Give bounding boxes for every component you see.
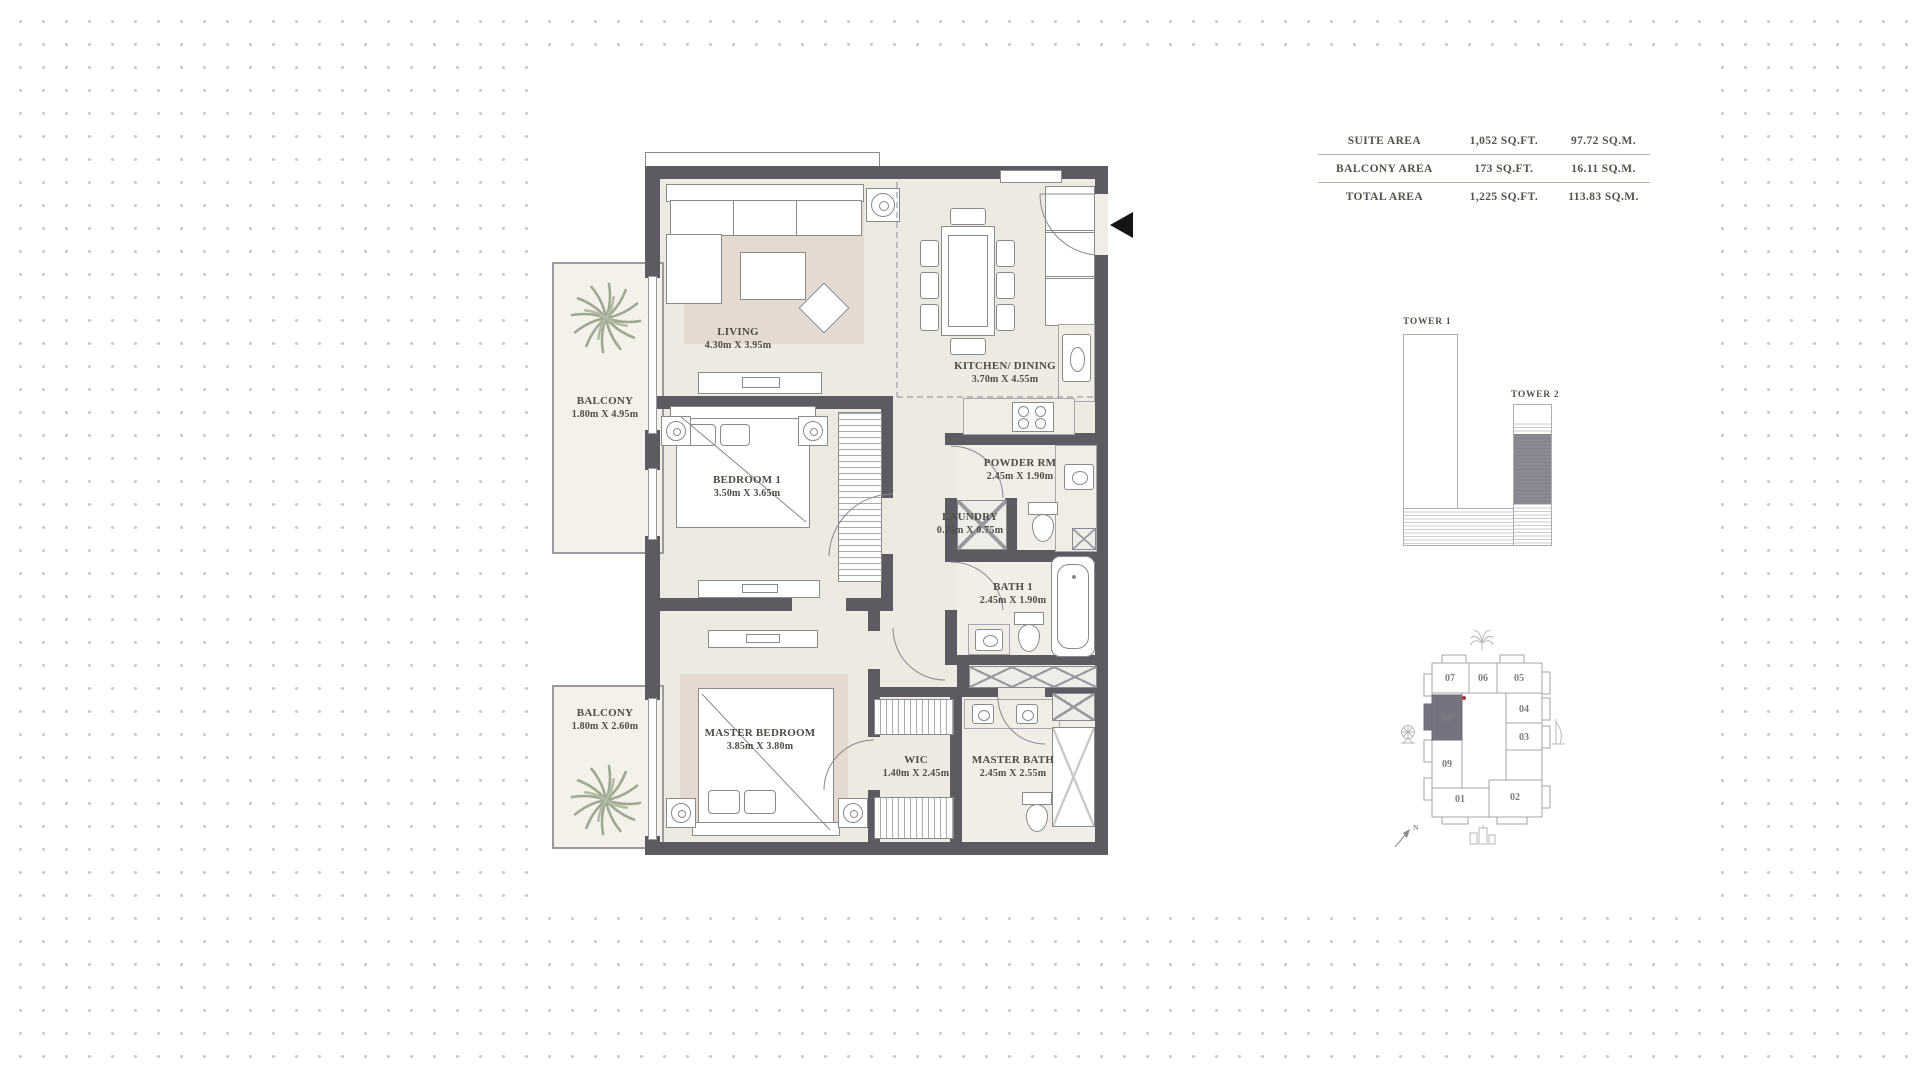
room-label-kitchen-dining: KITCHEN/ DINING3.70m X 4.55m <box>915 360 1095 386</box>
unit-number: 09 <box>1442 759 1452 770</box>
room-label-balcony-2: BALCONY1.80m X 2.60m <box>549 707 661 733</box>
tower-1-label: TOWER 1 <box>1403 317 1451 327</box>
unit-number: 03 <box>1519 732 1529 743</box>
skyline-icon <box>1470 825 1495 844</box>
room-label-balcony-1: BALCONY1.80m X 4.95m <box>549 395 661 421</box>
tower-2-highlighted-floors <box>1514 434 1551 504</box>
area-sqft: 1,052 SQ.FT. <box>1451 135 1557 147</box>
tower-2-outline <box>1513 404 1552 546</box>
room-label-bedroom-1: BEDROOM 13.50m X 3.65m <box>657 474 837 500</box>
area-label: TOTAL AREA <box>1318 191 1451 203</box>
burj-al-arab-icon <box>1552 719 1565 744</box>
unit-number: 02 <box>1510 792 1520 803</box>
unit-number: 05 <box>1514 673 1524 684</box>
room-label-master-bedroom: MASTER BEDROOM3.85m X 3.80m <box>658 727 862 753</box>
north-label: N <box>1413 823 1419 832</box>
keyplan: 07 06 05 08 04 03 09 01 02 <box>1385 628 1625 878</box>
unit-marker-dot <box>1462 696 1466 700</box>
room-label-bath-1: BATH 12.45m X 1.90m <box>938 581 1088 607</box>
area-table: SUITE AREA 1,052 SQ.FT. 97.72 SQ.M. BALC… <box>1318 127 1650 210</box>
table-row: TOTAL AREA 1,225 SQ.FT. 113.83 SQ.M. <box>1318 183 1650 210</box>
floorplan-page: LIVING4.30m X 3.95m KITCHEN/ DINING3.70m… <box>0 0 1920 1078</box>
area-sqm: 97.72 SQ.M. <box>1557 135 1650 147</box>
area-sqm: 113.83 SQ.M. <box>1557 191 1650 203</box>
room-label-living: LIVING4.30m X 3.95m <box>648 326 828 352</box>
unit-number-highlighted: 08 <box>1442 713 1452 724</box>
room-label-master-bath: MASTER BATH2.45m X 2.55m <box>938 754 1088 780</box>
unit-number: 07 <box>1445 673 1455 684</box>
room-label-powder: POWDER RM2.45m X 1.90m <box>945 457 1095 483</box>
unit-number: 01 <box>1455 794 1465 805</box>
area-label: BALCONY AREA <box>1318 163 1451 175</box>
table-row: BALCONY AREA 173 SQ.FT. 16.11 SQ.M. <box>1318 155 1650 183</box>
room-label-laundry: LAUNDRY0.75m X 0.75m <box>910 511 1030 537</box>
table-row: SUITE AREA 1,052 SQ.FT. 97.72 SQ.M. <box>1318 127 1650 155</box>
unit-number: 06 <box>1478 673 1488 684</box>
tower-2-label: TOWER 2 <box>1511 390 1559 400</box>
area-sqm: 16.11 SQ.M. <box>1557 163 1650 175</box>
palm-tree-icon <box>1471 631 1493 650</box>
tower-1-outline <box>1403 334 1458 510</box>
area-label: SUITE AREA <box>1318 135 1451 147</box>
area-sqft: 1,225 SQ.FT. <box>1451 191 1557 203</box>
unit-08-balcony <box>1424 704 1432 730</box>
entrance-arrow-icon <box>1110 212 1133 238</box>
area-sqft: 173 SQ.FT. <box>1451 163 1557 175</box>
unit-number: 04 <box>1519 704 1529 715</box>
north-arrow: N <box>1395 823 1419 847</box>
ferris-wheel-icon <box>1401 726 1415 744</box>
